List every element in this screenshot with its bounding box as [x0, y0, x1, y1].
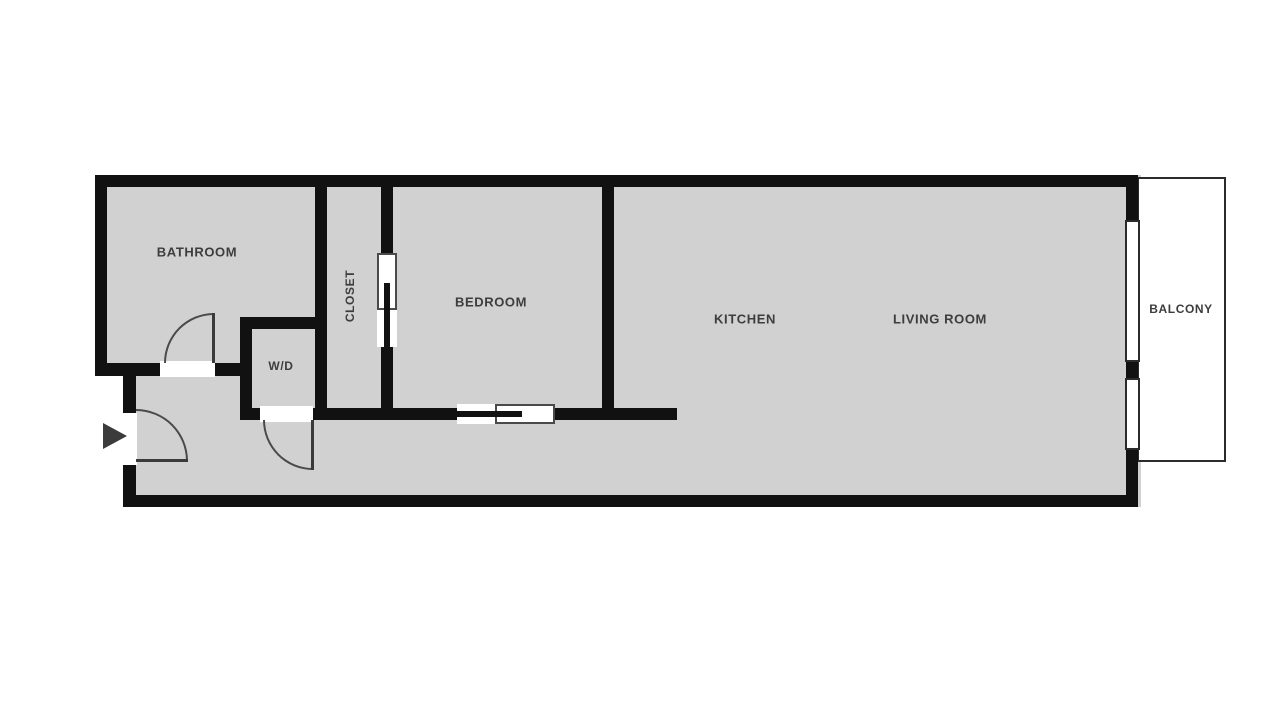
closet-pocket-track	[384, 283, 390, 347]
wall-entry-upper	[123, 363, 136, 413]
kitchen-label: KITCHEN	[714, 312, 776, 327]
wall-hall-bottom-c	[555, 408, 677, 420]
wall-top	[95, 175, 1138, 187]
wall-bathroom-closet	[315, 187, 327, 420]
wall-wd-top	[240, 317, 327, 329]
balcony-label: BALCONY	[1149, 302, 1213, 316]
wall-bathroom-bottom-right	[215, 363, 240, 376]
entry-door-leaf	[136, 459, 188, 462]
balcony-window-lower	[1125, 378, 1140, 450]
wall-closet-bedroom-upper	[381, 187, 393, 253]
wall-right-lower	[1126, 450, 1138, 495]
entry-arrow-icon	[103, 423, 127, 449]
wall-left-upper	[95, 175, 107, 375]
wall-wd-left	[240, 317, 252, 420]
wall-hall-bottom-a	[240, 408, 260, 420]
wall-bottom	[123, 495, 1138, 507]
bedroom-label: BEDROOM	[455, 295, 527, 310]
living-room-label: LIVING ROOM	[893, 312, 987, 327]
wall-hall-bottom-b	[313, 408, 457, 420]
wall-right-upper	[1126, 187, 1138, 220]
balcony-outline	[1137, 177, 1226, 462]
wall-bedroom-kitchen	[602, 187, 614, 420]
bathroom-door-opening	[160, 361, 215, 377]
bedroom-pocket-track	[457, 411, 522, 417]
bathroom-door-leaf	[212, 313, 215, 363]
wall-right-mid	[1126, 362, 1138, 378]
wd-door-leaf	[311, 420, 314, 470]
floorplan-canvas: BATHROOM CLOSET W/D BEDROOM KITCHEN LIVI…	[0, 0, 1280, 720]
wd-label: W/D	[268, 359, 293, 373]
balcony-window-upper	[1125, 220, 1140, 362]
closet-label: CLOSET	[343, 270, 357, 322]
bathroom-label: BATHROOM	[157, 245, 237, 260]
